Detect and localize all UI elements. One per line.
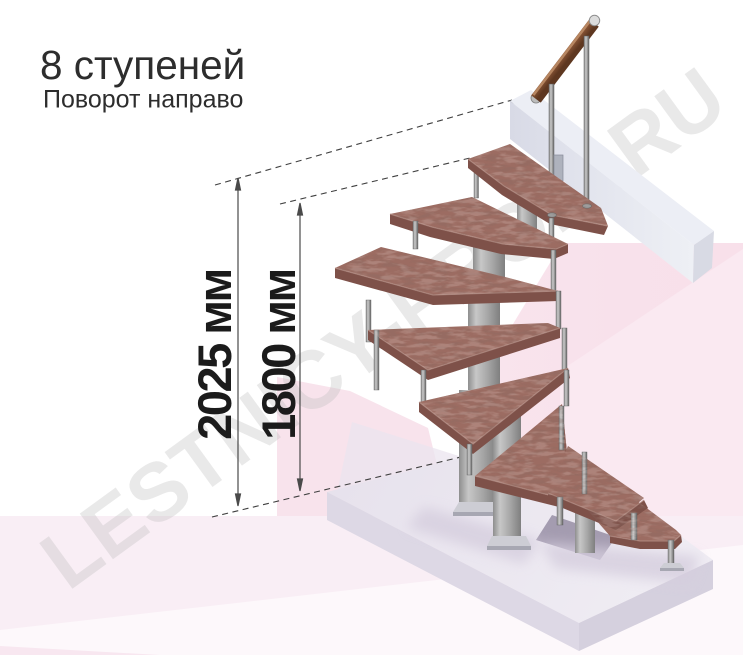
svg-text:8 ступеней: 8 ступеней — [40, 42, 245, 88]
svg-text:Поворот направо: Поворот направо — [43, 86, 243, 114]
svg-text:1800 мм: 1800 мм — [252, 270, 305, 440]
svg-text:2025 мм: 2025 мм — [188, 270, 241, 440]
